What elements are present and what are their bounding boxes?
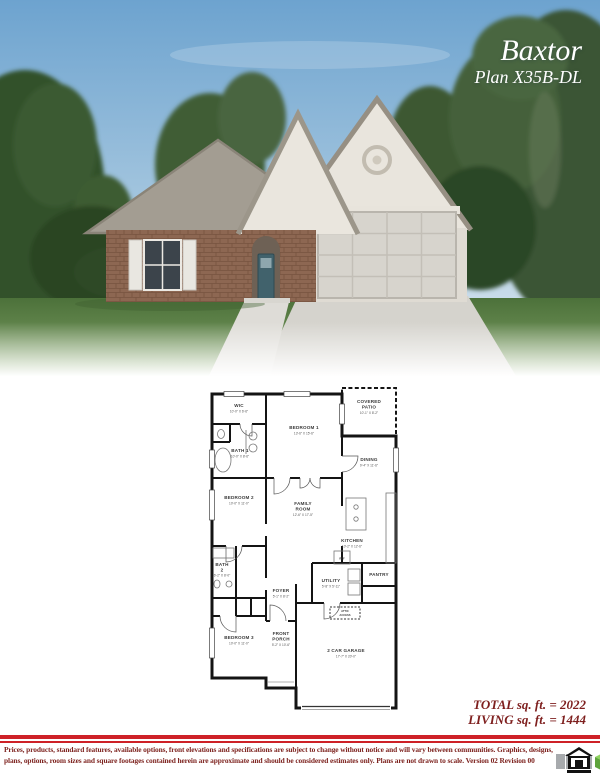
sink-2 [249,444,257,452]
floor-plan: WIC 10'-0" X 6'-6" BATH 1 10'-0" X 8'-6"… [200,386,400,718]
disclaimer-line-2: plans, options, room sizes and square fo… [4,756,553,767]
shutter-right [183,240,196,290]
room-dims-garage: 17'-7" X 20'-0" [336,655,356,659]
room-label-bedroom3: BEDROOM 3 [224,635,254,640]
toilet-2 [214,580,220,588]
tub-bath2 [213,548,234,558]
cloud [170,41,450,69]
plan-name: Baxtor [475,34,583,67]
room-label-bath2-1: BATH [215,562,229,567]
title-block: Baxtor Plan X35B-DL [475,34,583,88]
room-label-porch-1: FRONT [273,631,290,636]
tub-bath1 [215,448,231,472]
porch-slab [244,298,290,303]
green-cube-icon [595,754,600,770]
room-dims-bath1: 10'-0" X 8'-6" [231,455,249,459]
room-dims-bedroom2: 10'-0" X 11'-0" [229,502,249,506]
room-label-porch-2: PORCH [272,637,290,642]
plan-number: Plan X35B-DL [475,67,583,88]
footer: Prices, products, standard features, ava… [4,745,596,775]
shutter-left [129,240,142,290]
room-label-bath2-2: 2 [221,568,224,573]
room-label-kitchen: KITCHEN [341,538,363,543]
disclaimer-line-1: Prices, products, standard features, ava… [4,745,553,756]
room-dims-porch: 5'-2" X 10'-6" [272,643,290,647]
room-dims-bedroom3: 10'-0" X 11'-0" [229,642,249,646]
photo-bottom-fade [0,322,600,386]
label-attic-1: ATTIC [341,609,349,613]
room-dims-kitchen: 10'-2" X 12'-6" [342,545,362,549]
kitchen-island [346,498,366,530]
door-window [261,258,272,268]
house-icon [565,747,593,773]
room-label-pantry: PANTRY [369,572,389,577]
gable-ornament-center [373,156,382,165]
sink-3 [226,581,232,587]
label-ref: REF [339,557,345,561]
washer [348,569,360,581]
room-dims-utility: 5'-8" X 5'-11" [322,585,340,589]
attic-access-box [330,607,360,619]
room-label-family-1: FAMILY [294,501,312,506]
dryer [348,583,360,595]
toilet-1 [218,430,225,439]
room-dims-wic: 10'-0" X 6'-6" [230,410,248,414]
room-label-garage: 2 CAR GARAGE [327,648,365,653]
room-dims-foyer: 5'-1" X 8'-2" [273,595,290,599]
builder-logo [555,745,600,775]
room-label-family-2: ROOM [295,507,310,512]
room-dims-dining: 9'-4" X 11'-6" [360,464,378,468]
room-label-wic: WIC [234,403,244,408]
room-dims-bath2: 6'-2" X 8'-0" [214,574,231,578]
room-dims-family: 12'-6" X 17'-5" [293,513,313,517]
shuttered-window [129,240,196,290]
room-label-patio-2: PATIO [362,405,377,410]
room-label-bath1: BATH 1 [231,448,249,453]
garage-door-opening [268,682,391,711]
room-label-bedroom1: BEDROOM 1 [289,425,319,430]
house-rendering: Baxtor Plan X35B-DL [0,0,600,386]
room-label-patio-1: COVERED [357,399,382,404]
logo-letter-block-1 [556,754,565,769]
room-dims-bedroom1: 13'-6" X 15'-6" [294,432,314,436]
room-dims-patio: 10'-1" X 8'-2" [360,411,378,415]
room-label-bedroom2: BEDROOM 2 [224,495,254,500]
room-label-utility: UTILITY [322,578,341,583]
room-labels: WIC 10'-0" X 6'-6" BATH 1 10'-0" X 8'-6"… [214,399,389,659]
room-label-foyer: FOYER [273,588,290,593]
living-sqft: LIVING sq. ft. = 1444 [468,712,586,727]
total-sqft: TOTAL sq. ft. = 2022 [468,697,586,712]
divider-rule [0,735,600,743]
floor-plan-svg: WIC 10'-0" X 6'-6" BATH 1 10'-0" X 8'-6"… [200,386,400,718]
disclaimer: Prices, products, standard features, ava… [4,745,553,766]
divider-thin-line [0,741,600,743]
divider-thick-line [0,735,600,739]
label-attic-2: ACCESS [339,613,350,617]
room-label-dining: DINING [360,457,378,462]
exterior-walls [212,394,396,708]
square-footage-totals: TOTAL sq. ft. = 2022 LIVING sq. ft. = 14… [468,697,586,727]
